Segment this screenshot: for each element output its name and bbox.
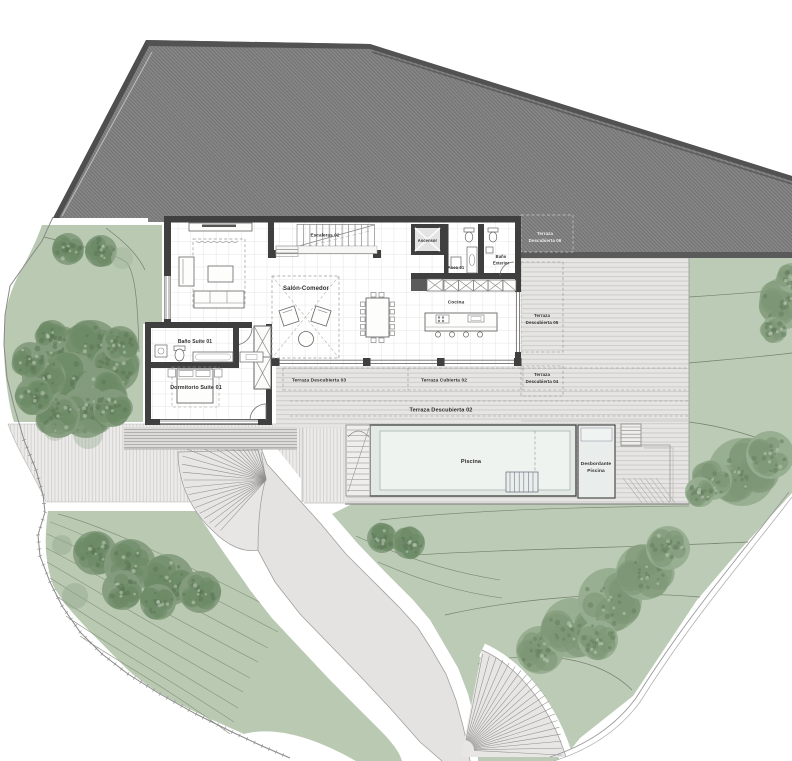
svg-text:Terraza Descubierta 03: Terraza Descubierta 03	[292, 378, 347, 384]
svg-text:Escaleras 02: Escaleras 02	[310, 233, 339, 238]
svg-text:Dormitorio Suite 01: Dormitorio Suite 01	[170, 385, 222, 391]
svg-text:Terraza: Terraza	[534, 313, 550, 318]
svg-text:Ascensor: Ascensor	[418, 238, 438, 243]
svg-text:Descubierta 04: Descubierta 04	[526, 379, 559, 384]
svg-text:Descubierta 05: Descubierta 05	[526, 320, 559, 325]
svg-text:Terraza: Terraza	[537, 231, 553, 236]
svg-text:Terraza: Terraza	[534, 372, 550, 377]
svg-text:Piscina: Piscina	[587, 468, 605, 474]
svg-text:Baño Suite 01: Baño Suite 01	[178, 339, 212, 345]
svg-text:Aseo 01: Aseo 01	[448, 265, 465, 270]
svg-text:Exterior: Exterior	[493, 261, 510, 266]
svg-text:Desbordante: Desbordante	[581, 461, 612, 467]
svg-text:Salón-Comedor: Salón-Comedor	[283, 286, 330, 292]
svg-text:Terraza Descubierta 02: Terraza Descubierta 02	[409, 408, 472, 414]
svg-text:Piscina: Piscina	[461, 459, 482, 465]
svg-text:Cocina: Cocina	[448, 300, 465, 306]
svg-text:Descubierta 06: Descubierta 06	[529, 238, 562, 243]
svg-text:Terraza Cubierta 02: Terraza Cubierta 02	[421, 378, 467, 384]
svg-text:Baño: Baño	[496, 254, 507, 259]
